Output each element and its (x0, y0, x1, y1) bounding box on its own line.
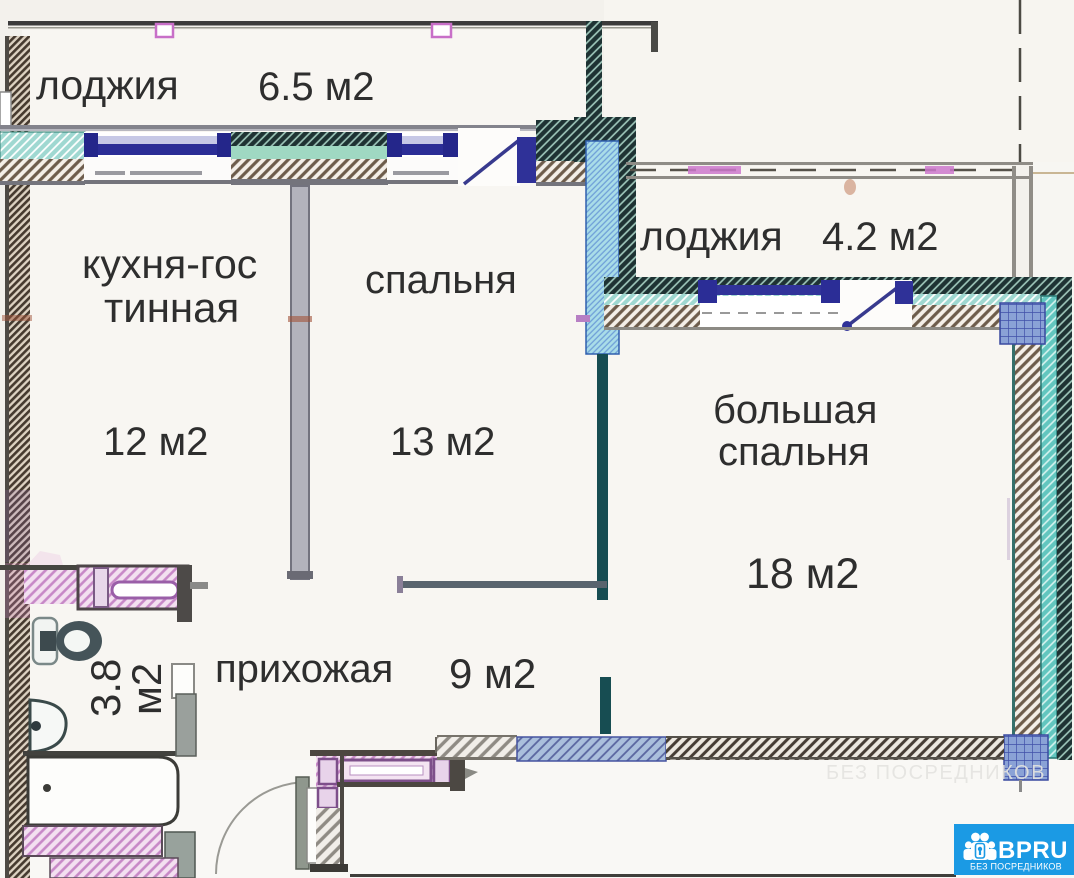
svg-text:тинная: тинная (104, 284, 239, 331)
svg-text:3.8: 3.8 (82, 659, 129, 717)
svg-text:кухня-гос: кухня-гос (82, 241, 257, 287)
svg-text:13 м2: 13 м2 (390, 420, 495, 464)
svg-text:лоджия: лоджия (640, 213, 783, 259)
svg-text:м2: м2 (123, 663, 170, 715)
svg-text:12 м2: 12 м2 (103, 420, 208, 464)
svg-text:6.5 м2: 6.5 м2 (258, 65, 374, 109)
svg-text:18 м2: 18 м2 (746, 550, 859, 598)
svg-text:9 м2: 9 м2 (449, 650, 536, 697)
svg-text:БЕЗ ПОСРЕДНИКОВ: БЕЗ ПОСРЕДНИКОВ (970, 862, 1062, 872)
svg-text:BPRU: BPRU (998, 837, 1068, 864)
svg-text:большая: большая (713, 388, 877, 432)
svg-text:спальня: спальня (365, 258, 517, 302)
svg-text:БЕЗ ПОСРЕДНИКОВ: БЕЗ ПОСРЕДНИКОВ (826, 762, 1046, 784)
svg-text:4.2 м2: 4.2 м2 (822, 215, 938, 259)
svg-text:спальня: спальня (718, 430, 870, 474)
svg-text:прихожая: прихожая (215, 647, 393, 691)
svg-text:лоджия: лоджия (36, 62, 179, 108)
